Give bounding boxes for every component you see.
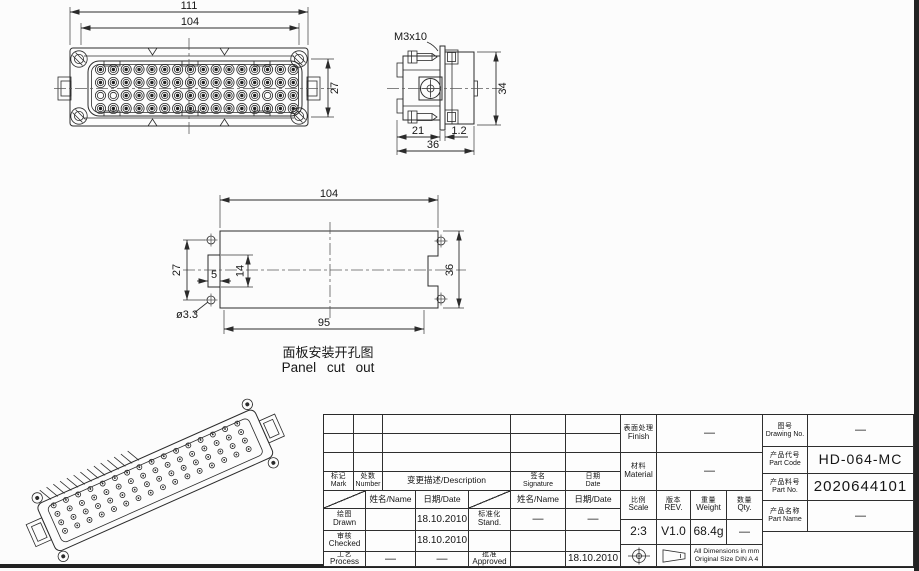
row-drawn-label: 绘图 Drawn <box>324 509 366 531</box>
note-line-1: All Dimensions in mm <box>694 548 759 556</box>
label-en: Scale <box>628 504 648 513</box>
checked-name <box>366 531 416 552</box>
qty-value: — <box>727 520 763 545</box>
diagonal-cell <box>324 491 366 509</box>
dim-95: 95 <box>318 317 330 329</box>
dim-1-2: 1.2 <box>451 125 466 137</box>
drawing-no-value: — <box>808 415 914 447</box>
corner-screw-icon <box>71 108 87 124</box>
drawing-sheet: 111 104 27 M3x10 3 <box>0 0 919 571</box>
finish-value: — <box>657 415 763 453</box>
value: — <box>704 427 715 439</box>
label-zh: 图号 <box>778 423 793 431</box>
label-zh: 产品名称 <box>770 508 800 516</box>
row-stand-label: 标准化 Stand. <box>469 509 511 531</box>
dimensions-note: All Dimensions in mm Original Size DIN A… <box>691 545 763 567</box>
iso-pin-grid <box>50 420 252 534</box>
checked-extra <box>566 531 621 552</box>
rev-cell <box>324 434 354 453</box>
cutout-caption-zh: 面板安装开孔图 <box>282 345 373 360</box>
process-name: — <box>366 552 416 567</box>
target-symbol-icon <box>627 547 651 565</box>
weight-label: 重量 Weight <box>691 491 727 520</box>
subheader-date-2: 日期/Date <box>566 491 621 509</box>
label-en: Drawing No. <box>766 431 805 439</box>
part-code-value: HD-064-MC <box>808 447 914 474</box>
dim-104-cutout: 104 <box>320 188 338 200</box>
dim-34: 34 <box>497 82 509 94</box>
checked-date: 18.10.2010 <box>416 531 469 552</box>
weight-value: 68.4g <box>691 520 727 545</box>
dim-21: 21 <box>412 125 424 137</box>
value: HD-064-MC <box>819 452 903 468</box>
finish-label: 表面处理 Finish <box>621 415 657 453</box>
label: 姓名/Name <box>517 495 559 505</box>
screw-callout: M3x10 <box>394 31 427 43</box>
label: 姓名/Name <box>369 495 411 505</box>
value: 2020644101 <box>814 479 907 496</box>
label-zh: 产品代号 <box>770 452 800 460</box>
value: — <box>704 465 715 477</box>
approved-name <box>511 552 566 567</box>
label-zh: 日期 <box>586 473 601 481</box>
value: — <box>588 513 599 525</box>
approved-date: 18.10.2010 <box>566 552 621 567</box>
subheader-date-1: 日期/Date <box>416 491 469 509</box>
rev-header-signature: 签名 Signature <box>511 472 566 491</box>
row-process-label: 工艺 Process <box>324 552 366 567</box>
drawn-name <box>366 509 416 531</box>
dim-14: 14 <box>235 265 247 277</box>
checked-extra <box>469 531 511 552</box>
scale-value: 2:3 <box>621 520 657 545</box>
frame-border-right <box>914 0 919 571</box>
label-en: Mark <box>331 481 347 489</box>
value: — <box>533 513 544 525</box>
datum-symbol-cell <box>621 545 657 567</box>
subheader-name-1: 姓名/Name <box>366 491 416 509</box>
label: 日期/Date <box>574 495 611 505</box>
projection-symbol-cell <box>657 545 691 567</box>
dim-5: 5 <box>211 269 217 281</box>
rev-cell <box>354 434 383 453</box>
first-angle-projection-icon <box>661 549 687 563</box>
mounting-hole-icon <box>205 234 218 247</box>
drawn-date: 18.10.2010 <box>416 509 469 531</box>
dim-27-holes: 27 <box>171 264 183 276</box>
rev-cell <box>324 453 354 472</box>
label-en: Approved <box>472 558 506 567</box>
label-en: Drawn <box>333 519 356 528</box>
rev-cell <box>383 415 511 434</box>
label-en: Part No. <box>772 487 798 495</box>
side-view: M3x10 34 21 1.2 36 <box>387 31 509 155</box>
label-zh: 产品料号 <box>770 479 800 487</box>
rev-cell <box>566 453 621 472</box>
front-view: 111 104 27 <box>54 0 341 136</box>
rev-cell <box>383 434 511 453</box>
isometric-view <box>16 390 295 569</box>
label-en: Finish <box>628 433 649 442</box>
qty-label: 数量 Qty. <box>727 491 763 520</box>
value: — <box>855 424 866 436</box>
value: 2:3 <box>630 525 647 538</box>
pin-grid <box>95 64 298 113</box>
rev-cell <box>511 453 566 472</box>
blank-cell <box>763 532 914 567</box>
dim-104: 104 <box>181 16 199 28</box>
label-en: Number <box>356 481 381 489</box>
label-en: Weight <box>696 504 721 513</box>
dim-36-cutout: 36 <box>444 264 456 276</box>
mounting-hole-icon <box>435 235 448 248</box>
stand-name: — <box>511 509 566 531</box>
note-line-2: Original Size DIN A 4 <box>695 556 758 564</box>
value: — <box>385 553 396 565</box>
rev-header-description: 变更描述/Description <box>383 472 511 491</box>
rev-label: 版本 REV. <box>657 491 691 520</box>
mounting-hole-icon <box>205 294 218 307</box>
panel-cutout-view: 104 95 27 36 14 5 ø3.3 面板安装开孔图 Panel cut… <box>171 188 466 375</box>
dim-36-depth: 36 <box>427 139 439 151</box>
label-en: Date <box>586 481 601 489</box>
rev-cell <box>566 415 621 434</box>
checked-extra <box>511 531 566 552</box>
label-en: REV. <box>665 504 683 513</box>
label-en: Material <box>624 471 652 480</box>
part-name-value: — <box>808 501 914 532</box>
label-en: Part Name <box>768 516 801 524</box>
label-en: Part Code <box>769 460 801 468</box>
label-en: Process <box>330 558 359 567</box>
value: — <box>437 553 448 565</box>
part-code-label: 产品代号 Part Code <box>763 447 808 474</box>
title-block: 标记 Mark 处数 Number 变更描述/Description 签名 Si… <box>323 414 914 566</box>
rev-cell <box>511 434 566 453</box>
label-zh: 签名 <box>531 473 546 481</box>
rev-cell <box>354 415 383 434</box>
cutout-caption-en: Panel cut out <box>282 360 375 375</box>
rev-cell <box>566 434 621 453</box>
label-zh: 处数 <box>361 473 376 481</box>
rev-header-mark: 标记 Mark <box>324 472 354 491</box>
corner-screw-icon <box>71 51 87 67</box>
part-no-label: 产品料号 Part No. <box>763 474 808 501</box>
value: V1.0 <box>661 525 686 538</box>
rev-cell <box>324 415 354 434</box>
value: — <box>739 526 750 538</box>
label-en: Stand. <box>478 519 501 528</box>
value: 18.10.2010 <box>417 535 467 546</box>
label-zh: 标记 <box>331 473 346 481</box>
row-approved-label: 批准 Approved <box>469 552 511 567</box>
label: 变更描述/Description <box>407 476 486 486</box>
dim-hole-dia: ø3.3 <box>176 309 198 321</box>
label-en: Signature <box>523 481 553 489</box>
dim-27: 27 <box>329 82 341 94</box>
panel-screw-icon <box>408 110 458 124</box>
value: 68.4g <box>693 525 723 538</box>
dim-111: 111 <box>181 0 198 12</box>
label-en: Qty. <box>737 504 751 513</box>
subheader-name-2: 姓名/Name <box>511 491 566 509</box>
rev-cell <box>354 453 383 472</box>
label-en: Checked <box>329 540 361 549</box>
hood-ribs <box>40 448 139 502</box>
mounting-hole-icon <box>435 293 448 306</box>
rev-cell <box>511 415 566 434</box>
material-value: — <box>657 453 763 491</box>
value: — <box>855 510 866 522</box>
stand-date: — <box>566 509 621 531</box>
rev-cell <box>383 453 511 472</box>
rev-value: V1.0 <box>657 520 691 545</box>
row-checked-label: 审核 Checked <box>324 531 366 552</box>
value: 18.10.2010 <box>568 553 618 564</box>
rev-header-number: 处数 Number <box>354 472 383 491</box>
process-date: — <box>416 552 469 567</box>
drawing-no-label: 图号 Drawing No. <box>763 415 808 447</box>
scale-label: 比例 Scale <box>621 491 657 520</box>
value: 18.10.2010 <box>417 514 467 525</box>
part-name-label: 产品名称 Part Name <box>763 501 808 532</box>
diagonal-cell <box>469 491 511 509</box>
label: 日期/Date <box>423 495 460 505</box>
material-label: 材料 Material <box>621 453 657 491</box>
rev-header-date: 日期 Date <box>566 472 621 491</box>
part-no-value: 2020644101 <box>808 474 914 501</box>
